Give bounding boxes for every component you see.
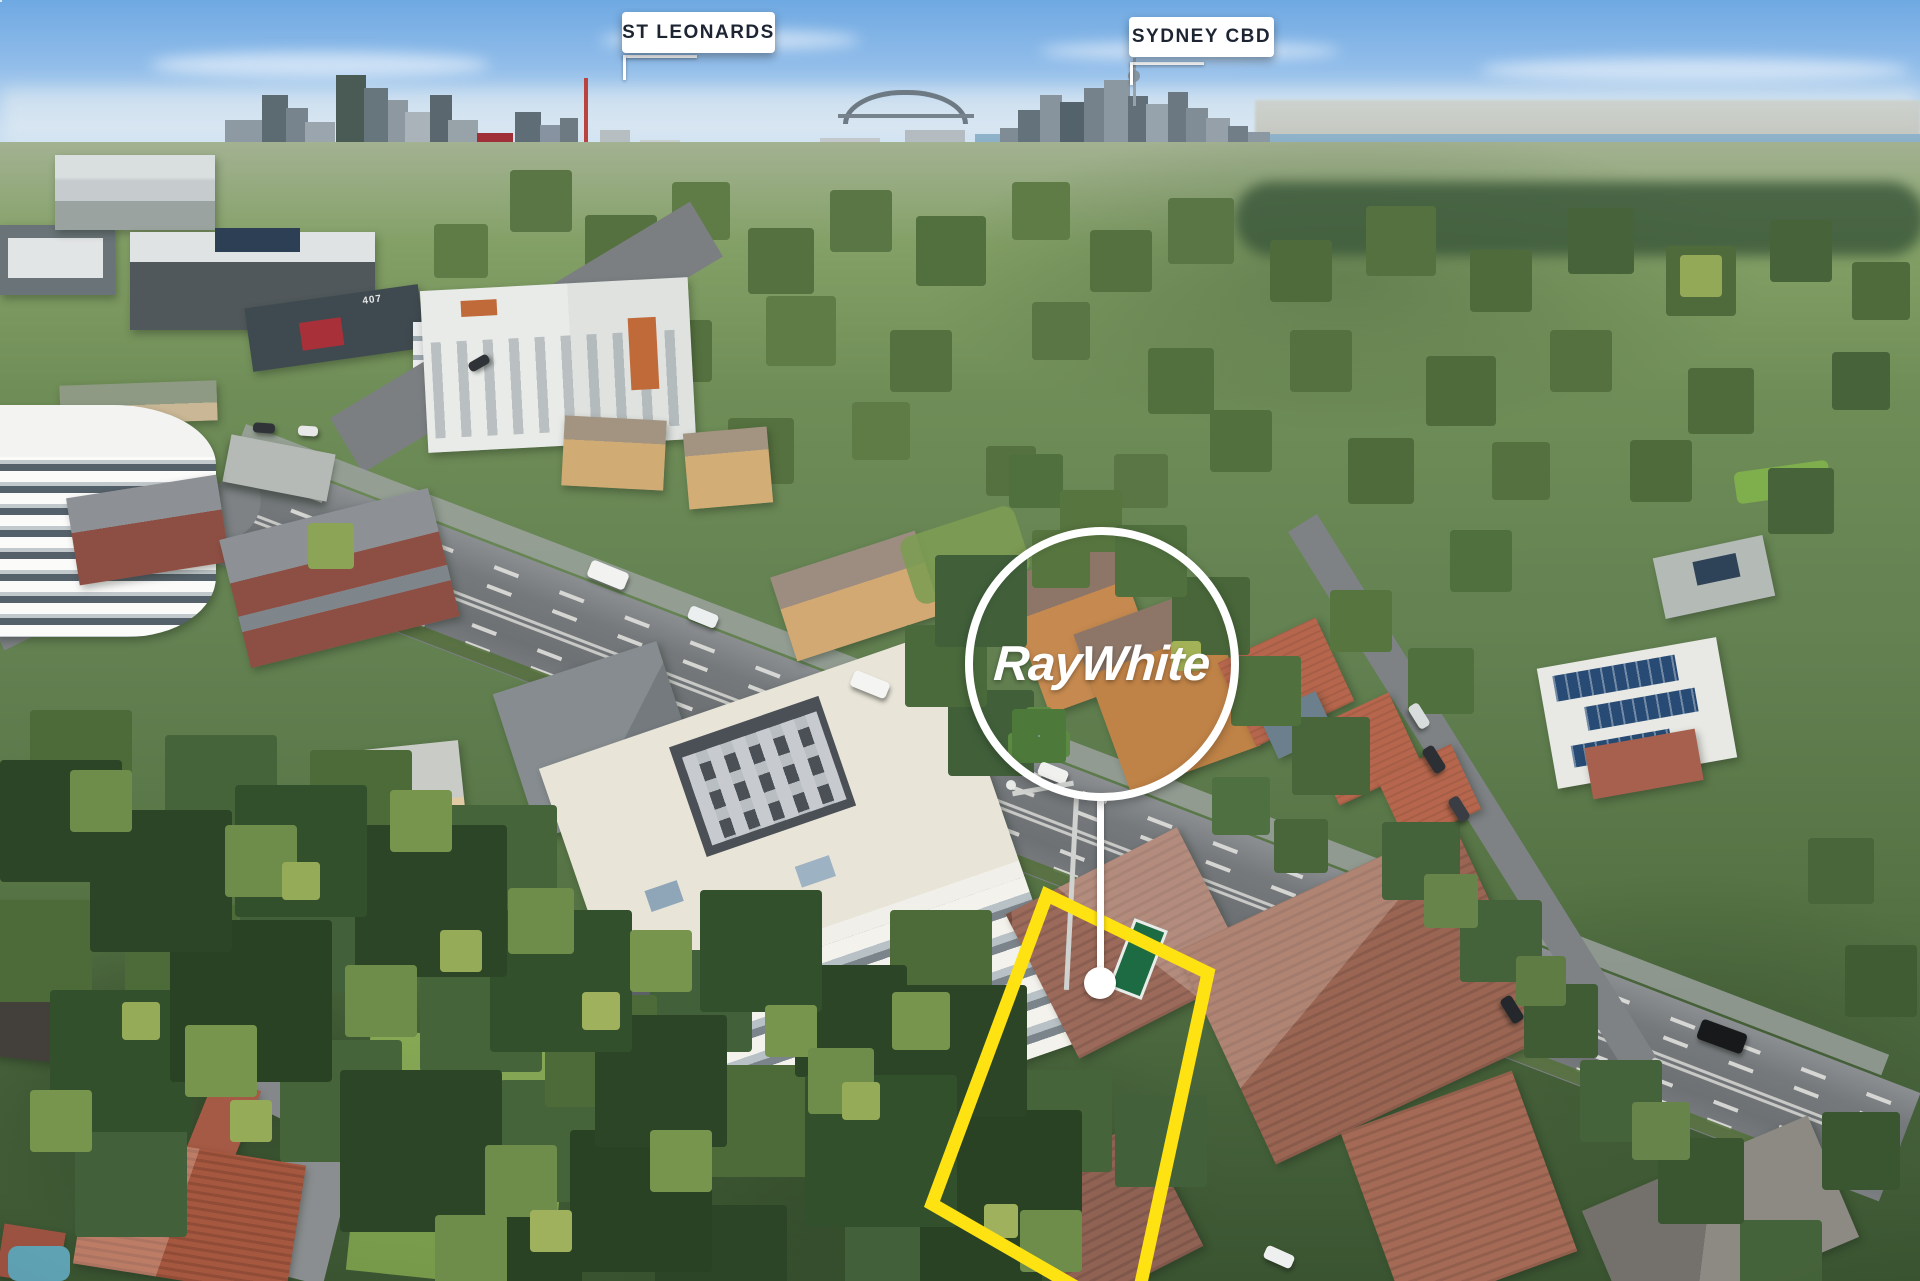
marker-pin-line [1097, 799, 1104, 971]
marker-pin-dot [1084, 967, 1116, 999]
label-leader-line [623, 55, 626, 80]
label-leader-line [623, 55, 697, 58]
location-label-sydney-cbd: SYDNEY CBD [1129, 17, 1274, 57]
location-label-st-leonards: ST LEONARDS [622, 12, 775, 53]
brand-watermark-circle: RayWhite [965, 527, 1239, 801]
aerial-property-photo: 407 [0, 0, 1920, 1281]
boundary-overlay [0, 0, 1920, 1281]
location-label-text: ST LEONARDS [622, 22, 775, 44]
subject-boundary-polygon [932, 895, 1208, 1281]
label-leader-line [1130, 62, 1133, 85]
label-leader-line [1130, 62, 1204, 65]
brand-watermark-text: RayWhite [992, 636, 1211, 692]
location-label-text: SYDNEY CBD [1132, 26, 1271, 48]
